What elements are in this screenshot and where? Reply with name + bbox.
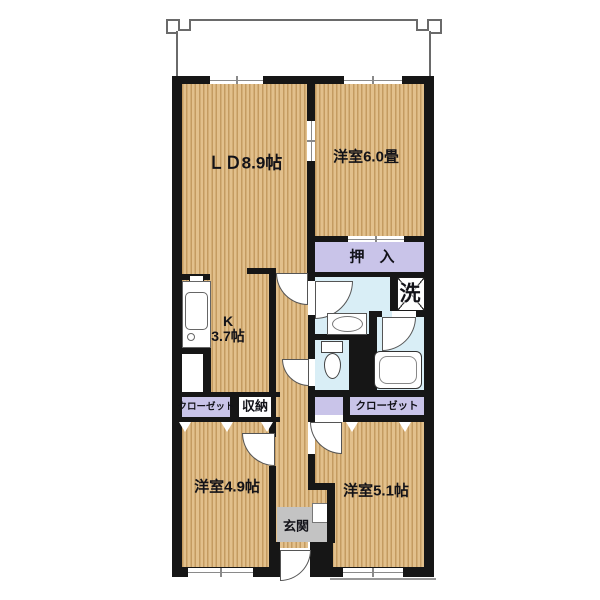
sliding-door-oshiire xyxy=(348,236,404,242)
balcony-top-line xyxy=(168,19,440,21)
wall-closetband-right-bottom xyxy=(343,415,425,422)
label-kitchen-line1: K xyxy=(223,314,233,328)
wall-smallcell-right xyxy=(343,397,350,415)
kitchen-faucet xyxy=(187,333,195,341)
wall-hall-right-2 xyxy=(308,315,315,359)
wall-ld-western6 xyxy=(307,84,315,277)
refrigerator-space xyxy=(182,354,203,392)
label-storage: 収納 xyxy=(242,400,268,413)
label-western51: 洋室5.1帖 xyxy=(343,484,409,499)
doorway-western51 xyxy=(315,415,343,422)
window-western6 xyxy=(344,76,402,84)
closet-small-cell xyxy=(315,397,343,415)
wall-genkan-right-mass xyxy=(310,542,333,568)
window-western51 xyxy=(343,568,403,577)
balcony-left-side xyxy=(176,31,178,77)
washbasin-bowl xyxy=(332,316,363,332)
balcony-left-hook xyxy=(178,19,191,31)
balcony-right-hook xyxy=(416,19,429,31)
porch-line xyxy=(330,578,436,580)
wall-toilet-bath-column xyxy=(349,334,369,390)
label-kitchen-line2: 3.7帖 xyxy=(211,329,244,343)
wall-hall-jog xyxy=(308,483,328,490)
wall-bath-top-right xyxy=(416,311,425,317)
wall-genkan-left-side xyxy=(271,550,280,568)
kitchen-sink xyxy=(185,292,208,330)
entrance-step xyxy=(312,503,328,523)
wall-genkan-left-top xyxy=(271,542,280,550)
label-closet-left: クローゼット xyxy=(177,402,234,412)
label-western6: 洋室6.0畳 xyxy=(333,150,399,165)
wall-hall-right-4 xyxy=(308,454,315,483)
toilet-tank xyxy=(321,341,343,353)
label-laundry: 洗 xyxy=(400,284,421,305)
opening-ld-western6 xyxy=(307,121,315,161)
window-western49 xyxy=(188,568,253,577)
wall-outer-right xyxy=(424,76,434,577)
label-entrance: 玄関 xyxy=(283,520,309,533)
balcony-right-step xyxy=(430,32,442,34)
wall-fridge-right xyxy=(203,354,211,392)
window-ld xyxy=(210,76,263,84)
label-closet-right: クローゼット xyxy=(356,401,419,412)
wall-closetband-right-top xyxy=(308,390,425,397)
wall-laundrybox-left xyxy=(390,277,397,311)
label-oshiire: 押 入 xyxy=(349,250,394,265)
wall-outer-left xyxy=(172,76,182,577)
wall-genkan-right xyxy=(327,483,335,543)
balcony-right-side xyxy=(429,31,431,77)
floor-plan: ＬＤ8.9帖 洋室6.0畳 押 入 K 3.7帖 洗 クローゼット 収納 クロー… xyxy=(0,0,600,600)
label-ld: ＬＤ8.9帖 xyxy=(208,155,283,172)
bathtub-inner xyxy=(379,356,417,384)
label-western49: 洋室4.9帖 xyxy=(194,480,260,495)
wall-hall-right-1 xyxy=(308,268,315,281)
